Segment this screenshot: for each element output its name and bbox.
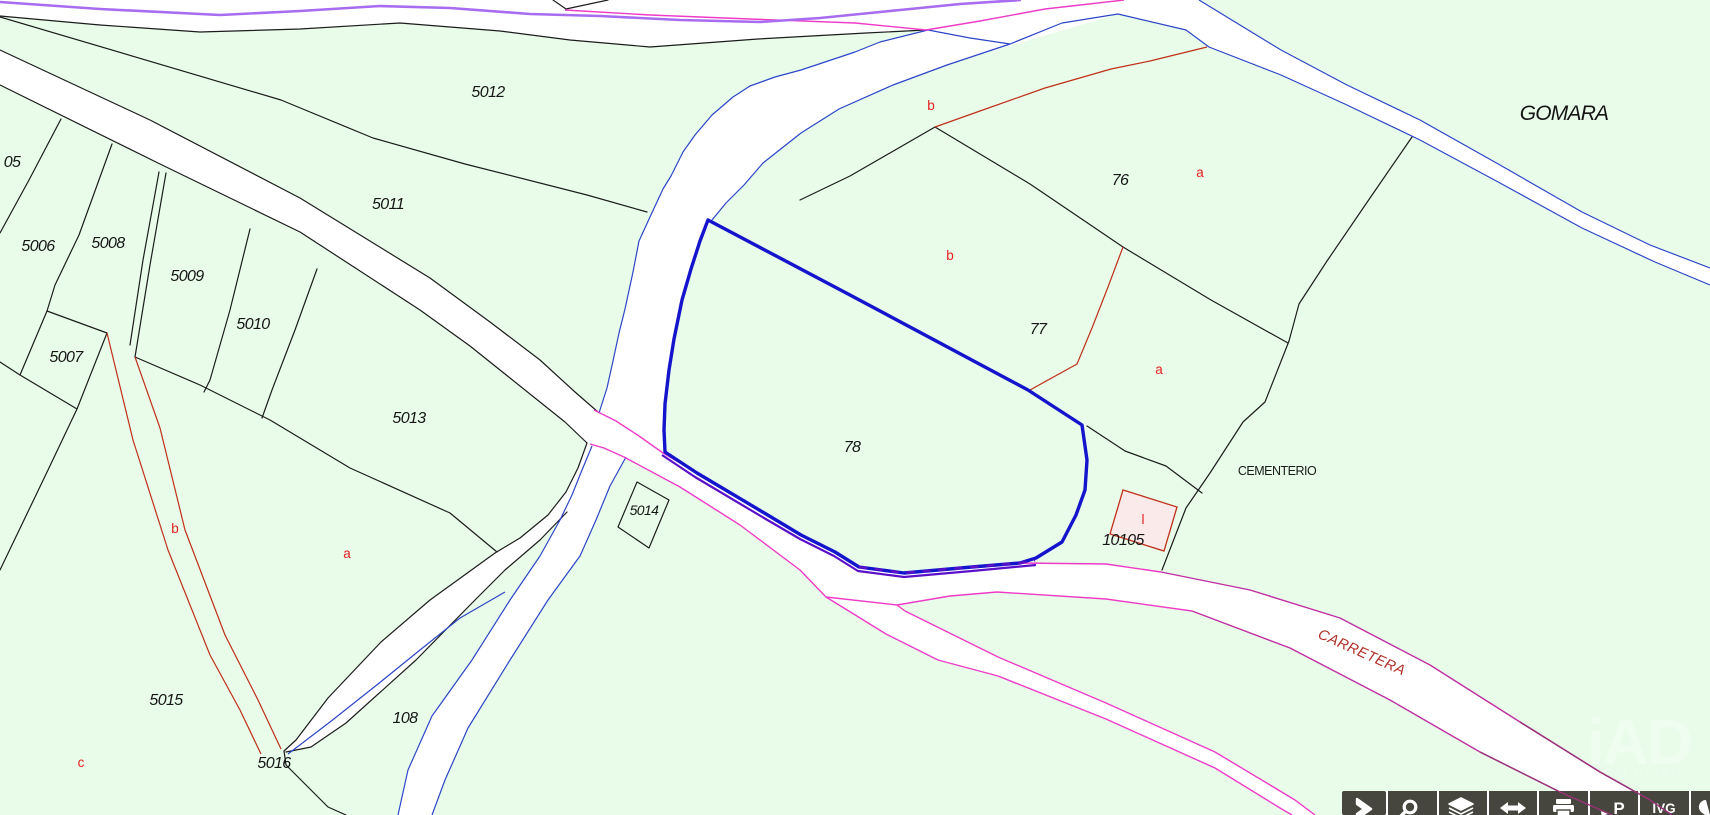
svg-text:5009: 5009 (170, 268, 204, 285)
svg-text:78: 78 (844, 439, 861, 456)
svg-text:77: 77 (1030, 321, 1048, 338)
svg-text:a: a (1196, 165, 1204, 180)
svg-text:CEMENTERIO: CEMENTERIO (1238, 464, 1317, 478)
svg-text:b: b (946, 248, 954, 263)
svg-text:l: l (1142, 512, 1145, 527)
svg-text:a: a (343, 546, 351, 561)
svg-text:iAD: iAD (1587, 706, 1691, 778)
svg-text:b: b (171, 521, 179, 536)
svg-text:10105: 10105 (1102, 532, 1144, 549)
svg-text:5015: 5015 (149, 692, 183, 709)
svg-text:108: 108 (393, 710, 419, 727)
svg-text:c: c (78, 755, 85, 770)
svg-text:5006: 5006 (21, 238, 55, 255)
svg-text:b: b (927, 98, 935, 113)
svg-text:5013: 5013 (392, 410, 426, 427)
svg-text:5016: 5016 (257, 755, 291, 772)
svg-text:5014: 5014 (630, 502, 660, 518)
svg-text:5012: 5012 (471, 84, 505, 101)
svg-text:76: 76 (1112, 172, 1129, 189)
svg-text:P: P (1613, 799, 1624, 815)
svg-text:REAL ESTATE: REAL ESTATE (1595, 769, 1687, 781)
svg-text:IVG: IVG (1652, 801, 1675, 815)
svg-text:5008: 5008 (91, 235, 125, 252)
svg-text:5011: 5011 (372, 196, 404, 213)
svg-text:5010: 5010 (236, 316, 270, 333)
svg-text:GOMARA: GOMARA (1520, 102, 1609, 125)
svg-text:05: 05 (4, 154, 21, 171)
svg-text:a: a (1155, 362, 1163, 377)
svg-text:5007: 5007 (49, 349, 84, 366)
